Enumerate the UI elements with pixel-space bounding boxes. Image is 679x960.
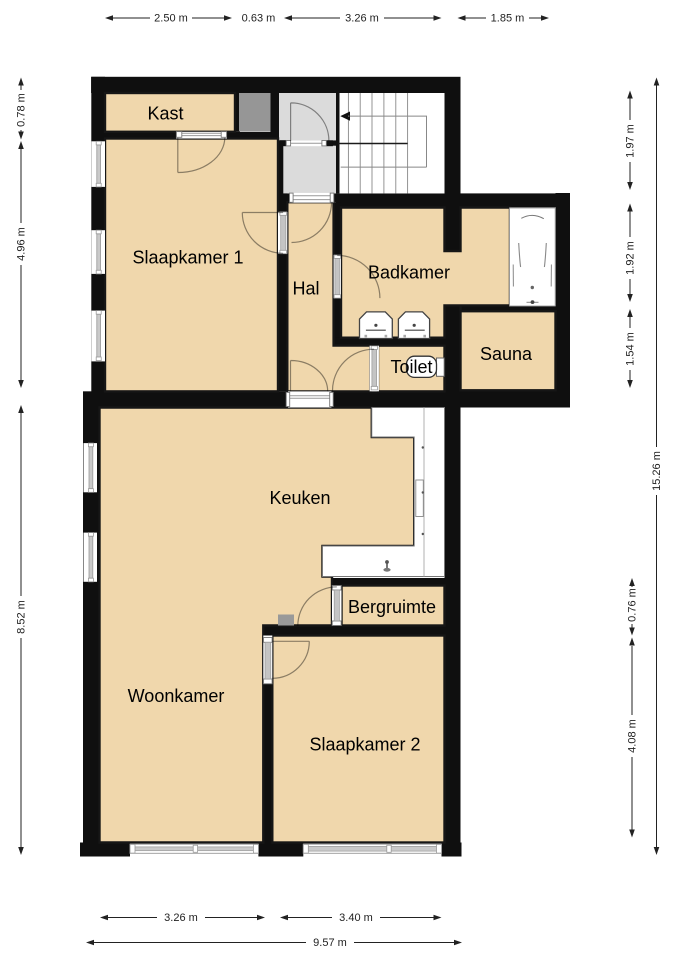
svg-text:1.54 m: 1.54 m <box>625 332 637 366</box>
svg-text:1.92 m: 1.92 m <box>625 241 637 275</box>
svg-text:Woonkamer: Woonkamer <box>128 686 225 706</box>
svg-text:Sauna: Sauna <box>480 344 533 364</box>
svg-text:3.26 m: 3.26 m <box>345 13 379 25</box>
svg-text:4.96 m: 4.96 m <box>16 227 28 261</box>
svg-text:Bergruimte: Bergruimte <box>348 597 436 617</box>
svg-text:Slaapkamer 2: Slaapkamer 2 <box>309 735 420 755</box>
svg-text:9.57 m: 9.57 m <box>313 937 347 949</box>
svg-text:3.26 m: 3.26 m <box>164 912 198 924</box>
svg-text:15.26 m: 15.26 m <box>651 451 663 491</box>
svg-text:0.76 m: 0.76 m <box>627 588 639 622</box>
svg-text:0.78 m: 0.78 m <box>16 93 28 127</box>
svg-text:1.97 m: 1.97 m <box>625 124 637 158</box>
svg-text:Badkamer: Badkamer <box>368 263 450 283</box>
svg-text:2.50 m: 2.50 m <box>154 13 188 25</box>
svg-text:Kast: Kast <box>147 104 183 124</box>
svg-text:0.63 m: 0.63 m <box>242 13 276 25</box>
svg-text:Keuken: Keuken <box>269 488 330 508</box>
svg-text:8.52 m: 8.52 m <box>16 600 28 634</box>
svg-text:Hal: Hal <box>292 279 319 299</box>
svg-text:Toilet: Toilet <box>390 357 432 377</box>
svg-text:1.85 m: 1.85 m <box>491 13 525 25</box>
svg-text:3.40 m: 3.40 m <box>339 912 373 924</box>
svg-text:Slaapkamer 1: Slaapkamer 1 <box>132 248 243 268</box>
svg-text:4.08 m: 4.08 m <box>627 719 639 753</box>
